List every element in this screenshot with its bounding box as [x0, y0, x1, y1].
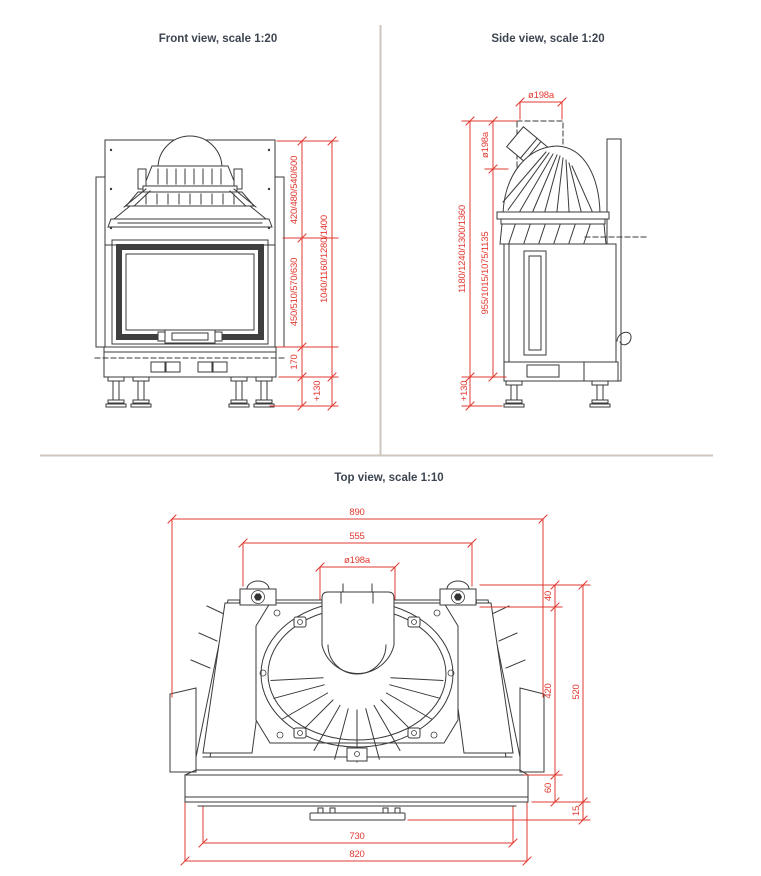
front-dim-total-height: 1040/1160/1280/1400	[319, 215, 330, 303]
technical-drawing-sheet: Front view, scale 1:20 Side view, scale …	[0, 0, 761, 876]
side-legs	[504, 381, 610, 407]
front-view-title: Front view, scale 1:20	[159, 33, 277, 45]
top-dim-opening-width: 730	[349, 831, 364, 842]
front-door	[112, 240, 268, 344]
hood-shelf	[114, 206, 266, 219]
top-view-title: Top view, scale 1:10	[334, 472, 443, 484]
side-dim-total-height: 1180/1240/1300/1360	[457, 205, 468, 293]
front-base	[95, 347, 285, 377]
top-bottom-tab-bolt	[355, 752, 360, 757]
front-dim-hood-height: 420/480/540/600	[289, 156, 300, 224]
door-frame	[119, 247, 261, 337]
dome-collar	[143, 186, 237, 192]
front-dim-leg-height: +130	[312, 381, 323, 402]
door-latch-left-nub	[158, 332, 165, 341]
side-dim-flue-diameter-side: ø198a	[480, 131, 491, 158]
front-left-side-strip	[96, 177, 105, 347]
top-right-wing	[520, 688, 544, 772]
front-view-dimensions: 420/480/540/600 450/510/570/630 170 1040…	[270, 137, 338, 410]
side-body	[504, 244, 616, 362]
front-right-side-strip	[275, 177, 284, 347]
side-base	[504, 362, 618, 381]
top-dim-rear-depth: 40	[543, 591, 554, 601]
front-view-drawing	[95, 136, 285, 407]
top-front-bar	[185, 770, 528, 820]
front-legs	[106, 377, 274, 407]
top-handle-bar	[310, 813, 405, 820]
top-dim-bracket-span: 555	[349, 531, 364, 542]
top-left-wing	[170, 688, 196, 772]
top-right-bracket	[440, 581, 476, 605]
side-dim-leg-height: +130	[459, 381, 470, 402]
side-view-title: Side view, scale 1:20	[491, 33, 604, 45]
front-dim-base-height: 170	[289, 354, 300, 369]
side-dome-heat-exchanger	[497, 146, 609, 244]
top-posts	[320, 584, 395, 592]
side-dim-flue-diameter-top: ø198a	[528, 90, 555, 101]
side-collar	[497, 212, 609, 219]
top-dim-flue-diameter: ø198a	[344, 555, 371, 566]
top-view-drawing	[170, 581, 544, 820]
side-dim-body-height: 955/1015/1075/1135	[480, 232, 491, 315]
top-dim-front-depth: 60	[543, 783, 554, 793]
side-view-drawing	[497, 121, 648, 407]
front-dimension-ticks	[298, 137, 336, 410]
side-collar2	[501, 219, 605, 224]
top-left-bracket	[240, 581, 276, 605]
top-dim-lip-depth: 15	[571, 806, 582, 816]
top-dim-overall-width: 890	[349, 507, 364, 518]
front-dim-door-height: 450/510/570/630	[289, 258, 300, 326]
top-dim-total-depth: 520	[571, 684, 582, 699]
top-dim-base-width: 820	[349, 849, 364, 860]
side-cone	[500, 224, 606, 244]
top-dim-mid-depth: 420	[543, 683, 554, 698]
door-latch-right-nub	[215, 332, 222, 341]
